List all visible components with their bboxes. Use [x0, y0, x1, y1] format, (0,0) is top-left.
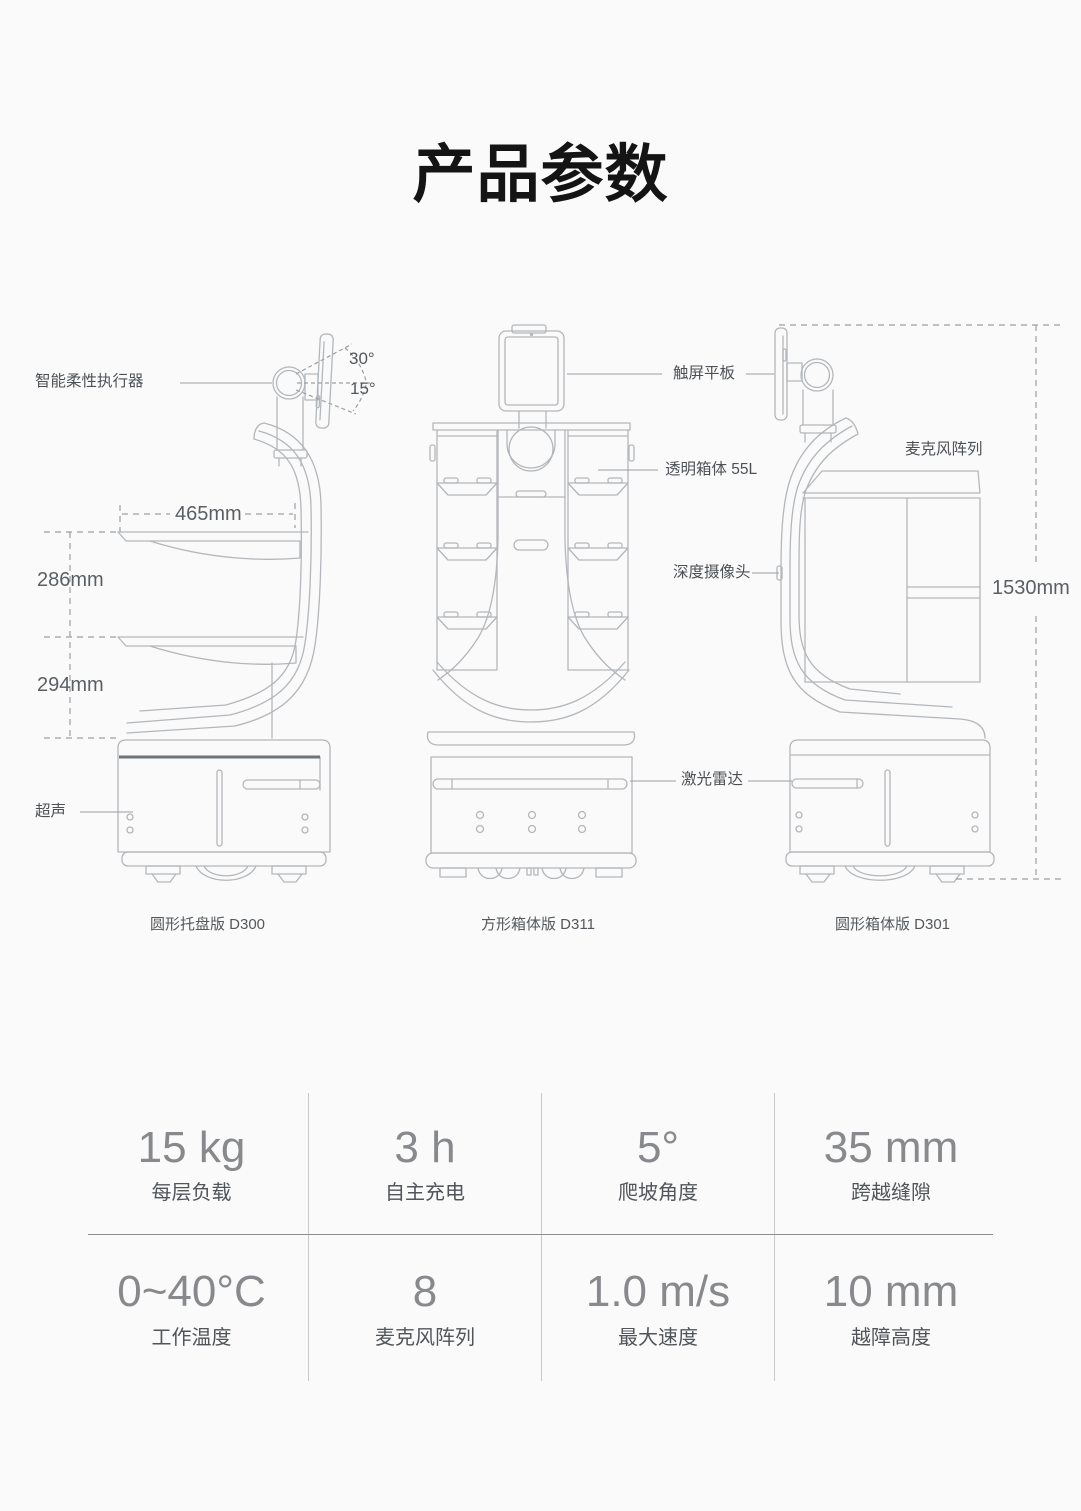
spec-label: 每层负载: [152, 1183, 232, 1203]
spec-row-1: 15 kg 每层负载 3 h 自主充电 5° 爬坡角度 35 mm 跨越缝隙: [75, 1093, 1007, 1234]
robot-d311-drawing: [426, 325, 636, 879]
label-transparent-box: 透明箱体 55L: [665, 462, 757, 478]
spec-cell-charging: 3 h 自主充电: [308, 1093, 541, 1234]
spec-cell-payload: 15 kg 每层负载: [75, 1093, 308, 1234]
spec-row-2: 0~40°C 工作温度 8 麦克风阵列 1.0 m/s 最大速度 10 mm 越…: [75, 1235, 1007, 1381]
product-spec-sheet: 产品参数: [0, 0, 1081, 1511]
spec-label: 工作温度: [152, 1328, 232, 1348]
dim-overall-height: 1530mm: [992, 578, 1070, 598]
label-angle-30: 30°: [349, 350, 375, 367]
spec-cell-gap-crossing: 35 mm 跨越缝隙: [774, 1093, 1007, 1234]
label-angle-15: 15°: [350, 380, 376, 397]
robot-d300-drawing: [118, 334, 333, 882]
dim-tray-gap-lower: 294mm: [37, 675, 104, 695]
spec-value: 0~40°C: [117, 1268, 265, 1316]
label-depth-camera: 深度摄像头: [673, 565, 751, 581]
spec-cell-obstacle-height: 10 mm 越障高度: [774, 1235, 1007, 1381]
caption-model-d300: 圆形托盘版 D300: [150, 917, 265, 932]
spec-value: 3 h: [394, 1124, 455, 1172]
caption-model-d311: 方形箱体版 D311: [481, 917, 595, 932]
spec-cell-max-speed: 1.0 m/s 最大速度: [541, 1235, 774, 1381]
dim-tray-gap-upper: 286mm: [37, 570, 104, 590]
label-touchscreen: 触屏平板: [673, 366, 735, 382]
spec-value: 15 kg: [138, 1124, 246, 1172]
label-mic-array: 麦克风阵列: [905, 442, 983, 458]
robot-d301-drawing: [775, 328, 994, 882]
spec-cell-temperature: 0~40°C 工作温度: [75, 1235, 308, 1381]
dimension-lines: [44, 325, 1063, 879]
spec-cell-mic-array: 8 麦克风阵列: [308, 1235, 541, 1381]
spec-label: 自主充电: [385, 1183, 465, 1203]
spec-value: 1.0 m/s: [586, 1268, 730, 1316]
label-ultrasonic: 超声: [35, 804, 66, 820]
spec-grid: 15 kg 每层负载 3 h 自主充电 5° 爬坡角度 35 mm 跨越缝隙 0…: [75, 1093, 1007, 1381]
spec-value: 8: [413, 1268, 437, 1316]
spec-label: 最大速度: [618, 1328, 698, 1348]
spec-value: 35 mm: [824, 1124, 958, 1172]
callout-leader-lines: [80, 374, 792, 812]
spec-label: 爬坡角度: [618, 1183, 698, 1203]
spec-value: 5°: [637, 1124, 679, 1172]
caption-model-d301: 圆形箱体版 D301: [835, 917, 950, 932]
label-actuator: 智能柔性执行器: [35, 374, 144, 390]
spec-label: 跨越缝隙: [851, 1183, 931, 1203]
label-lidar: 激光雷达: [681, 772, 743, 788]
dim-tray-depth: 465mm: [175, 504, 242, 524]
spec-cell-climb-angle: 5° 爬坡角度: [541, 1093, 774, 1234]
spec-label: 麦克风阵列: [375, 1328, 475, 1348]
spec-label: 越障高度: [851, 1328, 931, 1348]
spec-value: 10 mm: [824, 1268, 958, 1316]
